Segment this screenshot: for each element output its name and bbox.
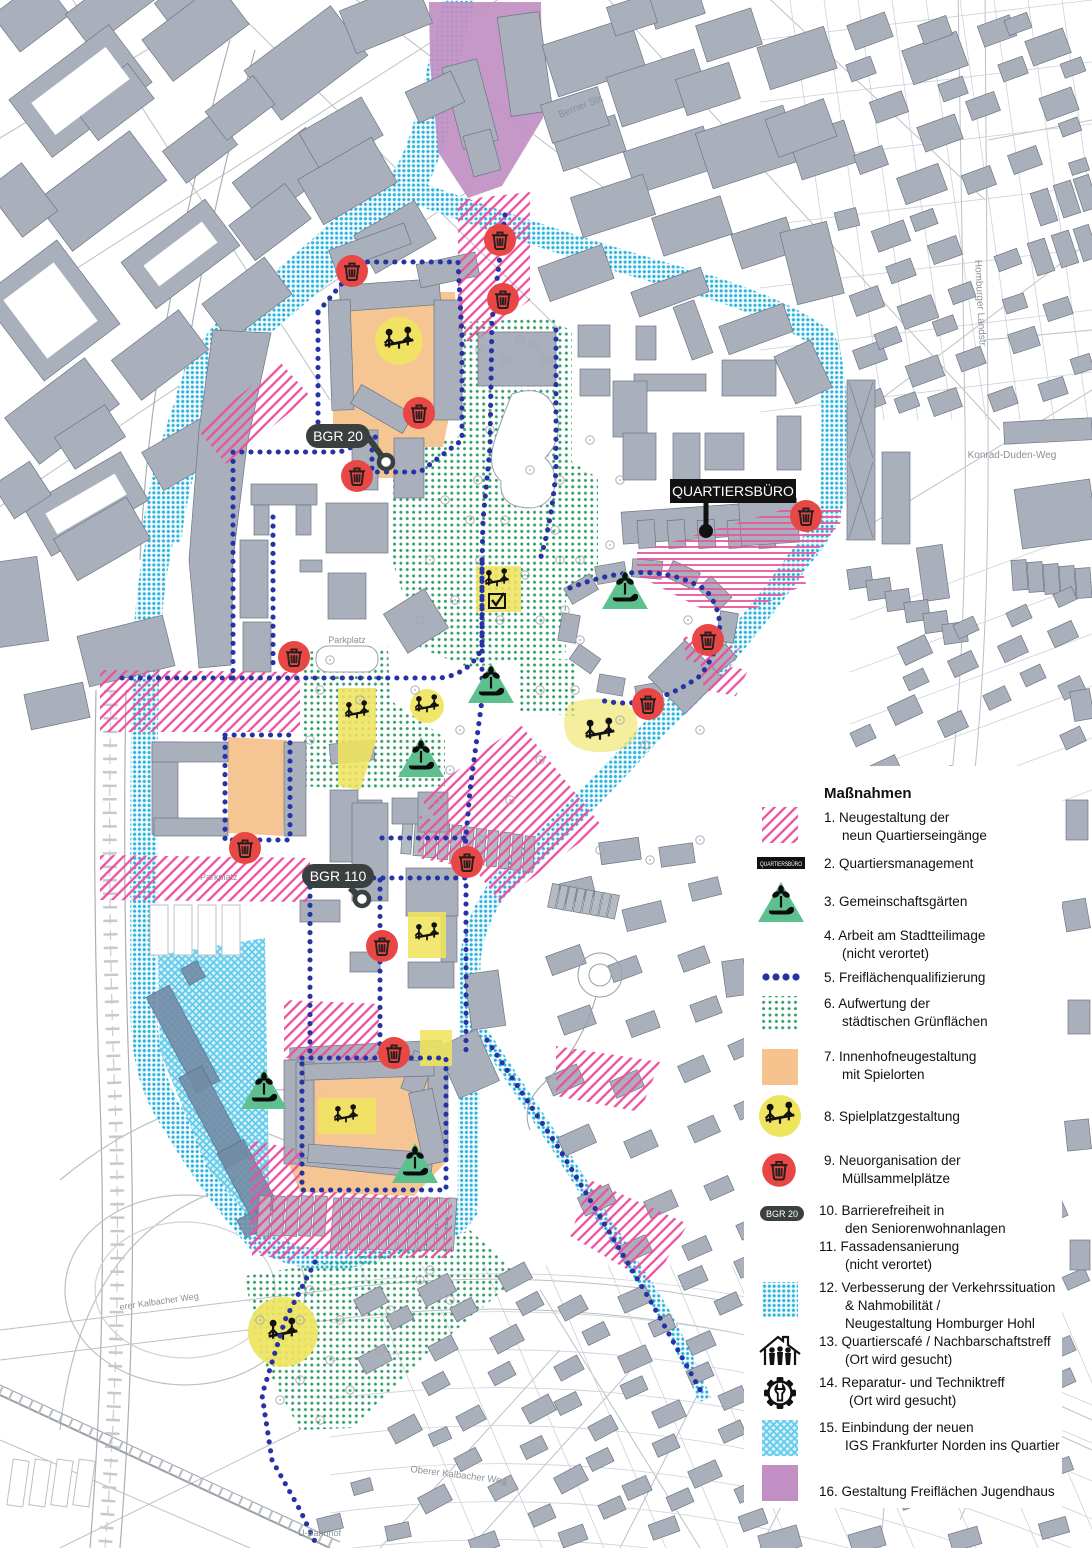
svg-text:QUARTIERSBÜRO: QUARTIERSBÜRO [760,860,802,868]
svg-text:BGR 20: BGR 20 [766,1209,798,1219]
svg-text:QUARTIERSBÜRO: QUARTIERSBÜRO [672,482,794,499]
svg-text:neun Quartierseingänge: neun Quartierseingänge [842,828,987,843]
svg-text:& Nahmobilität /: & Nahmobilität / [845,1298,941,1313]
svg-text:mit Spielorten: mit Spielorten [842,1067,925,1082]
svg-text:6. Aufwertung der: 6. Aufwertung der [824,996,930,1011]
svg-text:3. Gemeinschaftsgärten: 3. Gemeinschaftsgärten [824,894,967,909]
svg-text:Müllsammelplätze: Müllsammelplätze [842,1171,950,1186]
svg-text:U-Bahnhof: U-Bahnhof [298,1528,342,1538]
svg-text:(nicht verortet): (nicht verortet) [845,1257,932,1272]
svg-text:12. Verbesserung der Verkehrss: 12. Verbesserung der Verkehrssituation [819,1280,1055,1295]
svg-text:4. Arbeit am Stadtteilimage: 4. Arbeit am Stadtteilimage [824,928,985,943]
svg-text:IGS Frankfurter Norden ins Qua: IGS Frankfurter Norden ins Quartier [845,1438,1060,1453]
svg-text:Maßnahmen: Maßnahmen [824,785,912,802]
svg-text:Parkplatz: Parkplatz [328,635,366,645]
svg-text:8. Spielplatzgestaltung: 8. Spielplatzgestaltung [824,1109,960,1124]
svg-text:BGR 20: BGR 20 [313,428,363,444]
svg-text:7. Innenhofneugestaltung: 7. Innenhofneugestaltung [824,1049,976,1064]
svg-text:(nicht verortet): (nicht verortet) [842,946,929,961]
svg-text:1. Neugestaltung der: 1. Neugestaltung der [824,810,950,825]
svg-text:9. Neuorganisation der: 9. Neuorganisation der [824,1153,961,1168]
svg-text:13. Quartierscafé / Nachbarsch: 13. Quartierscafé / Nachbarschaftstreff [819,1334,1051,1349]
svg-text:5. Freiflächenqualifizierung: 5. Freiflächenqualifizierung [824,970,985,985]
svg-text:10. Barrierefreiheit in: 10. Barrierefreiheit in [819,1203,944,1218]
svg-text:2. Quartiersmanagement: 2. Quartiersmanagement [824,856,974,871]
svg-text:städtischen Grünflächen: städtischen Grünflächen [842,1014,988,1029]
svg-text:(Ort wird gesucht): (Ort wird gesucht) [845,1352,952,1367]
svg-text:14. Reparatur- und Techniktref: 14. Reparatur- und Techniktreff [819,1375,1005,1390]
svg-text:11. Fassadensanierung: 11. Fassadensanierung [819,1239,959,1254]
svg-text:den Seniorenwohnanlagen: den Seniorenwohnanlagen [845,1221,1006,1236]
svg-text:16. Gestaltung Freiflächen Jug: 16. Gestaltung Freiflächen Jugendhaus [819,1484,1055,1499]
svg-text:Neugestaltung Homburger Hohl: Neugestaltung Homburger Hohl [845,1316,1035,1331]
svg-text:(Ort wird gesucht): (Ort wird gesucht) [849,1393,956,1408]
svg-text:BGR 110: BGR 110 [310,868,367,884]
svg-text:Konrad-Duden-Weg: Konrad-Duden-Weg [968,450,1057,461]
svg-text:15. Einbindung der neuen: 15. Einbindung der neuen [819,1420,974,1435]
